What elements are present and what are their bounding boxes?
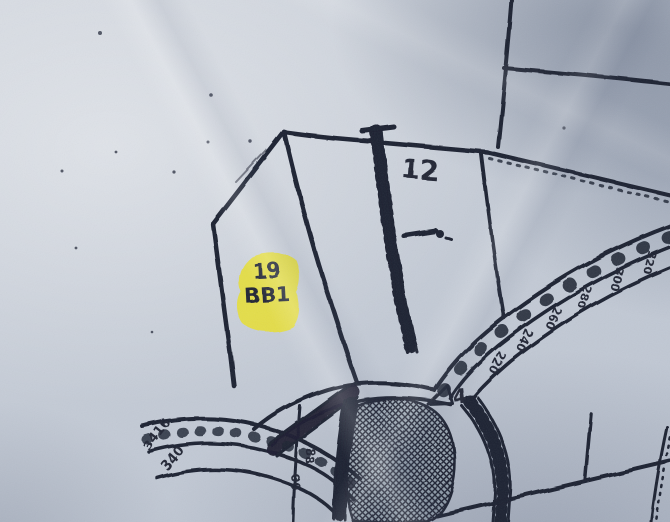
- map-drawing: 19 BB1 12 4 320 300 280 260 240 220 3416…: [0, 0, 670, 522]
- map-photo: 19 BB1 12 4 320 300 280 260 240 220 3416…: [0, 0, 670, 522]
- noise-overlay: [0, 0, 670, 522]
